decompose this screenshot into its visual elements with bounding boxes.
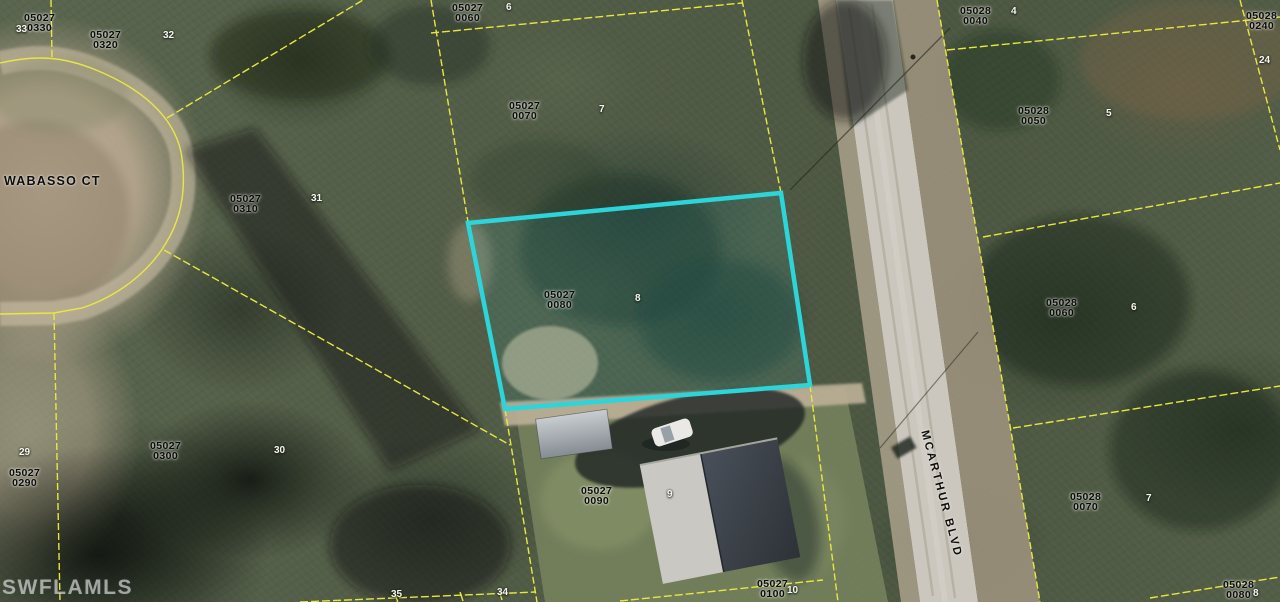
survey-tick bbox=[499, 590, 502, 600]
highlighted-parcel[interactable] bbox=[468, 193, 810, 409]
roadside-tree bbox=[803, 0, 887, 120]
tree-blob bbox=[370, 5, 490, 85]
boundary-line bbox=[431, 3, 742, 33]
utility-pole bbox=[911, 55, 916, 60]
boundary-line bbox=[1150, 577, 1280, 598]
tree-blob bbox=[210, 10, 390, 100]
tree-blob bbox=[1110, 370, 1280, 530]
brown-scrub-blob bbox=[1080, 0, 1280, 120]
aerial-map[interactable]: 0502703300502703200502703100502703000502… bbox=[0, 0, 1280, 602]
map-graphics bbox=[0, 0, 1280, 602]
tree-blob bbox=[470, 140, 610, 220]
tree-blob bbox=[940, 30, 1060, 130]
mls-watermark: SWFLAMLS bbox=[2, 576, 133, 600]
tree-blob bbox=[970, 215, 1190, 385]
tree-blob bbox=[330, 485, 510, 602]
boundary-line bbox=[742, 0, 781, 193]
